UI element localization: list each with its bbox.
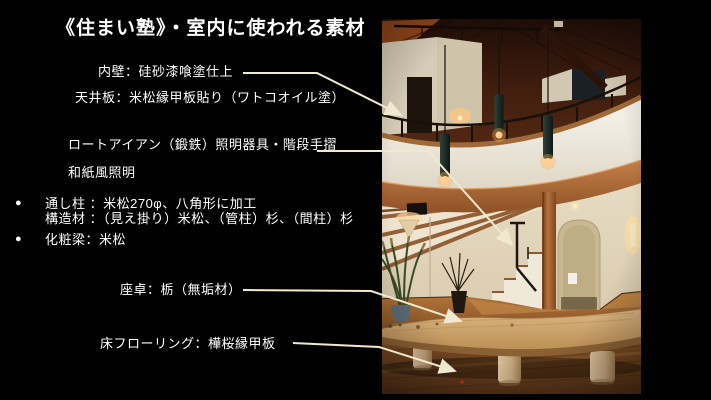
bullet-item-through-post: ● 通し柱 ：米松270φ、八角形に加工 構造材 ：（見え掛り）米松、（管柱）杉… [15, 196, 354, 226]
slide: 《住まい塾》・室内に使われる素材 内壁：硅砂漆喰塗仕上 天井板：米松縁甲板貼り（… [0, 0, 711, 400]
label-decorative-beam: 化粧梁：米松 [45, 232, 126, 247]
photo-vignette [382, 19, 641, 394]
bullet-item-decorative-beam: ● 化粧梁：米松 [15, 232, 126, 247]
label-ceiling-board: 天井板：米松縁甲板貼り（ワトコオイル塗） [75, 91, 345, 105]
label-low-table: 座卓：栃（無垢材） [120, 283, 242, 297]
label-structural-material: 構造材 ：（見え掛り）米松、（管柱）杉、（間柱）杉 [45, 211, 354, 226]
slide-title: 《住まい塾》・室内に使われる素材 [56, 13, 366, 40]
interior-photo [382, 19, 641, 394]
label-wrought-iron: ロートアイアン（鍛鉄）照明器具・階段手摺 [68, 138, 337, 152]
interior-photo-art [382, 19, 641, 394]
label-through-post: 通し柱 ：米松270φ、八角形に加工 [45, 196, 354, 211]
bullet-icon: ● [15, 196, 45, 226]
label-flooring: 床フローリング：樺桜縁甲板 [100, 337, 276, 351]
label-inner-wall: 内壁：硅砂漆喰塗仕上 [98, 65, 233, 79]
bullet-icon: ● [15, 232, 45, 247]
label-washi-lighting: 和紙風照明 [68, 166, 136, 180]
bullet-text: 通し柱 ：米松270φ、八角形に加工 構造材 ：（見え掛り）米松、（管柱）杉、（… [45, 196, 354, 226]
